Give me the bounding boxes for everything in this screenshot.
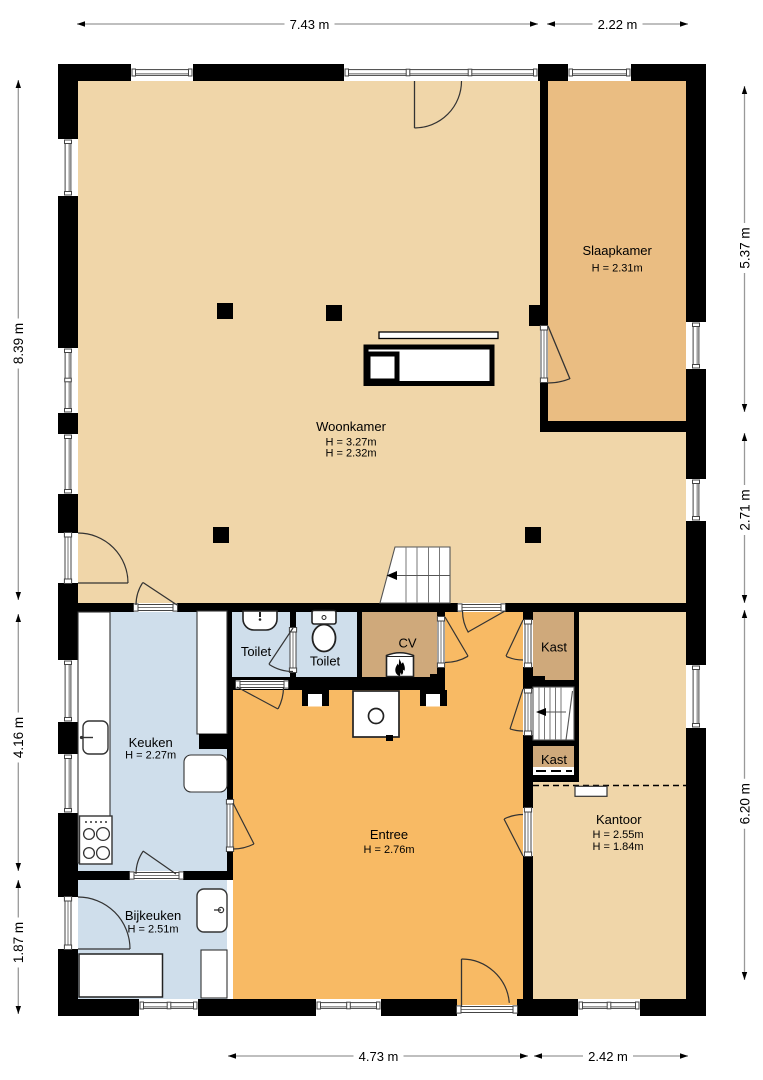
svg-text:Toilet: Toilet <box>310 654 341 669</box>
svg-text:H = 2.32m: H = 2.32m <box>325 448 376 460</box>
svg-text:Keuken: Keuken <box>129 735 173 750</box>
svg-text:Kast: Kast <box>541 752 567 767</box>
svg-text:5.37 m: 5.37 m <box>737 227 752 268</box>
svg-text:Slaapkamer: Slaapkamer <box>583 243 653 258</box>
svg-text:8.39 m: 8.39 m <box>11 323 26 364</box>
svg-text:2.71 m: 2.71 m <box>737 489 752 530</box>
svg-text:H = 2.51m: H = 2.51m <box>127 924 178 936</box>
svg-text:CV: CV <box>398 636 416 651</box>
svg-text:H = 2.27m: H = 2.27m <box>125 750 176 762</box>
svg-text:Toilet: Toilet <box>241 644 272 659</box>
svg-text:1.87 m: 1.87 m <box>11 922 26 963</box>
svg-text:2.42 m: 2.42 m <box>588 1049 628 1064</box>
svg-text:Kast: Kast <box>541 640 567 655</box>
svg-text:H = 2.55m: H = 2.55m <box>592 829 643 841</box>
svg-text:Entree: Entree <box>370 827 408 842</box>
svg-text:H = 2.76m: H = 2.76m <box>363 844 414 856</box>
svg-text:7.43 m: 7.43 m <box>290 17 330 32</box>
svg-text:Bijkeuken: Bijkeuken <box>125 908 181 923</box>
svg-text:2.22 m: 2.22 m <box>598 17 638 32</box>
svg-text:H = 2.31m: H = 2.31m <box>592 263 643 275</box>
svg-text:6.20 m: 6.20 m <box>737 783 752 824</box>
svg-text:4.73 m: 4.73 m <box>359 1049 399 1064</box>
svg-text:4.16 m: 4.16 m <box>11 717 26 758</box>
svg-text:Kantoor: Kantoor <box>596 812 642 827</box>
svg-text:H = 1.84m: H = 1.84m <box>592 841 643 853</box>
svg-text:Woonkamer: Woonkamer <box>316 419 387 434</box>
